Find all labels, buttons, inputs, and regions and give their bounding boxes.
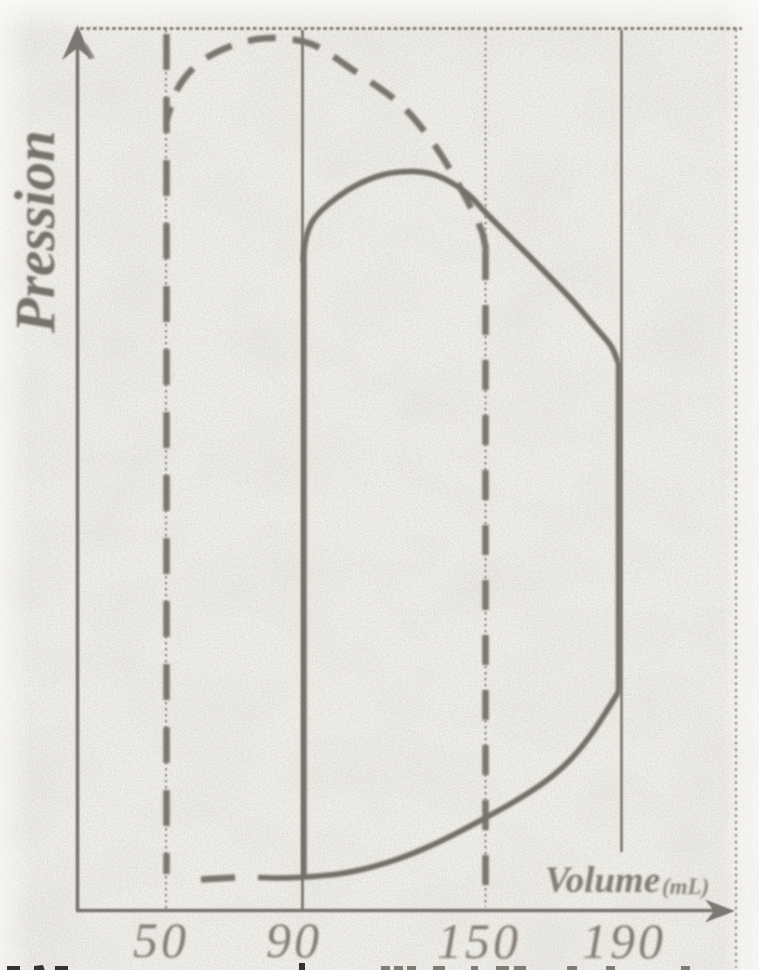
svg-text:(mL): (mL) [662, 874, 709, 899]
svg-text:190: 190 [582, 913, 666, 969]
svg-text:90: 90 [266, 912, 322, 968]
svg-text:50: 50 [133, 912, 189, 968]
svg-text:150: 150 [437, 913, 521, 969]
svg-text:Volume: Volume [545, 860, 660, 901]
svg-text:Pression: Pression [4, 130, 67, 334]
